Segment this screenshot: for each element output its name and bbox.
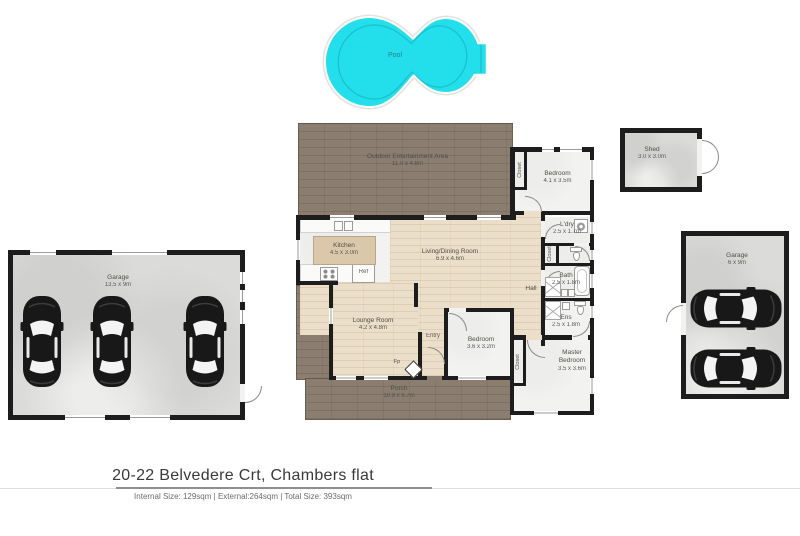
room-label: L'dry xyxy=(542,221,592,229)
car-top-view-icon xyxy=(90,294,134,389)
master-bedroom-label: Master Bedroom 3.5 x 3.6m xyxy=(551,349,593,374)
window-marker xyxy=(130,415,170,420)
window-marker xyxy=(424,215,446,220)
door-swing-icon xyxy=(702,140,719,157)
window-marker xyxy=(560,147,582,152)
room-dims: 2.5 x 1.7m xyxy=(542,229,592,237)
wall-segment xyxy=(514,383,526,386)
bedroom-top-label: Bedroom 4.1 x 3.5m xyxy=(530,170,585,186)
fridge-label-text: Ref xyxy=(352,269,375,277)
room-label: Closet xyxy=(517,162,523,178)
car-top-view-icon xyxy=(689,347,784,391)
window-marker xyxy=(112,250,167,255)
door-swing-icon xyxy=(666,305,683,322)
property-address: 20-22 Belvedere Crt, Chambers flat xyxy=(40,467,446,485)
stove-icon xyxy=(320,267,338,281)
hall-label: Hall xyxy=(516,285,546,293)
room-dims: 6.9 x 4.6m xyxy=(405,256,495,264)
room-label: Master Bedroom xyxy=(551,349,593,366)
wall-segment xyxy=(510,211,594,215)
room-label: Hall xyxy=(516,285,546,293)
shed-label: Shed 3.0 x 3.0m xyxy=(616,146,688,162)
wall-segment xyxy=(681,231,789,236)
lounge-label: Lounge Room 4.2 x 4.8m xyxy=(345,317,401,333)
pool-label-text: Pool xyxy=(388,52,402,59)
wall-segment xyxy=(590,335,594,415)
divider-line-accent xyxy=(116,487,432,489)
door-swing-icon xyxy=(245,386,262,403)
room-label: Closet xyxy=(547,246,553,262)
wall-segment xyxy=(620,128,702,133)
room-dims: 4.2 x 4.8m xyxy=(345,325,401,333)
window-marker xyxy=(590,378,594,394)
room-label: Shed xyxy=(616,146,688,154)
outdoor-area-label: Outdoor Entertainment Area 11.0 x 4.8m xyxy=(330,153,485,169)
room-dims: 2.5 x 1.8m xyxy=(540,322,592,330)
room-dims: 3.6 x 3.2m xyxy=(452,344,510,352)
window-marker xyxy=(590,250,594,260)
garage-right-label: Garage 6 x 9m xyxy=(712,252,762,268)
wall-segment xyxy=(512,187,527,190)
living-dining-label: Living/Dining Room 6.9 x 4.6m xyxy=(405,248,495,264)
closet-label: Closet xyxy=(545,239,555,269)
vanity-sink-icon xyxy=(568,289,575,297)
window-marker xyxy=(240,310,245,324)
wall-segment xyxy=(556,245,559,265)
window-marker xyxy=(30,250,56,255)
wall-segment xyxy=(523,340,526,385)
closet-label: Closet xyxy=(515,155,525,185)
room-label: Lounge Room xyxy=(345,317,401,325)
window-marker xyxy=(542,147,554,152)
room-dims: 2.5 x 1.8m xyxy=(540,280,592,288)
address-text: 20-22 Belvedere Crt, Chambers flat xyxy=(112,467,374,484)
wall-segment xyxy=(8,250,13,420)
room-label: Bath xyxy=(540,272,592,280)
window-marker xyxy=(240,272,245,284)
garage-left-label: Garage 13.5 x 9m xyxy=(73,274,163,290)
room-dims: 3.0 x 3.0m xyxy=(616,154,688,162)
room-dims: 11.0 x 4.8m xyxy=(330,161,485,169)
room-label: Bedroom xyxy=(530,170,585,178)
size-summary-text: Internal Size: 129sqm | External:264sqm … xyxy=(134,492,352,501)
kitchen-sink-icon xyxy=(344,221,353,231)
wall-segment xyxy=(8,415,245,420)
room-label: Closet xyxy=(515,354,521,370)
window-marker xyxy=(477,215,501,220)
floorplan-canvas: Pool Ref xyxy=(0,0,800,536)
outdoor-entertainment-deck xyxy=(298,123,513,217)
car-top-view-icon xyxy=(183,294,227,389)
wall-segment xyxy=(784,231,789,399)
vanity-sink-icon xyxy=(562,302,570,310)
window-marker xyxy=(336,376,356,380)
room-label: Ens xyxy=(540,314,592,322)
car-top-view-icon xyxy=(689,287,784,331)
room-dims: 4.1 x 3.5m xyxy=(530,178,585,186)
room-label: Bedroom xyxy=(452,336,510,344)
door-gap xyxy=(427,376,442,380)
room-label: Garage xyxy=(712,252,762,260)
bedroom-mid-label: Bedroom 3.6 x 3.2m xyxy=(452,336,510,352)
window-marker xyxy=(590,160,594,180)
closet-label: Closet xyxy=(513,347,523,377)
laundry-label: L'dry 2.5 x 1.7m xyxy=(542,221,592,237)
entry-label: Entry xyxy=(420,333,446,341)
porch-label: Porch 10.9 x 6.7m xyxy=(369,385,429,401)
room-label: Entry xyxy=(420,333,446,341)
wall-segment xyxy=(681,394,789,399)
vanity-sink-icon xyxy=(561,289,568,297)
room-dims: 13.5 x 9m xyxy=(73,282,163,290)
pool-label: Pool xyxy=(375,52,415,59)
room-label: Living/Dining Room xyxy=(405,248,495,256)
room-label: Kitchen xyxy=(315,242,373,250)
fridge-label: Ref xyxy=(352,269,375,277)
room-label: Porch xyxy=(369,385,429,393)
room-dims: 6 x 9m xyxy=(712,260,762,268)
pool-shape xyxy=(318,10,494,110)
fireplace-label: Fp xyxy=(390,359,404,366)
room-dims: 4.5 x 3.0m xyxy=(315,250,373,258)
room-label: Outdoor Entertainment Area xyxy=(330,153,485,161)
kitchen-label: Kitchen 4.5 x 3.0m xyxy=(315,242,373,258)
room-label: Fp xyxy=(390,359,404,366)
window-marker xyxy=(330,215,354,220)
wall-segment xyxy=(620,187,702,192)
window-marker xyxy=(534,411,558,415)
wall-segment xyxy=(329,281,333,380)
window-marker xyxy=(364,376,388,380)
bath-label: Bath 2.5 x 1.8m xyxy=(540,272,592,288)
window-marker xyxy=(329,308,333,324)
room-label: Garage xyxy=(73,274,163,282)
door-swing-icon xyxy=(702,157,719,174)
window-marker xyxy=(240,290,245,302)
room-dims: 3.5 x 3.6m xyxy=(551,366,593,374)
window-marker xyxy=(65,415,105,420)
window-marker xyxy=(458,376,486,380)
size-summary: Internal Size: 129sqm | External:264sqm … xyxy=(40,492,446,501)
room-dims: 10.9 x 6.7m xyxy=(369,393,429,401)
window-marker xyxy=(296,240,300,260)
wall-segment xyxy=(444,308,448,380)
wall-segment xyxy=(414,283,418,307)
car-top-view-icon xyxy=(20,294,64,389)
kitchen-sink-icon xyxy=(334,221,343,231)
ensuite-label: Ens 2.5 x 1.8m xyxy=(540,314,592,330)
door-gap xyxy=(449,308,466,312)
